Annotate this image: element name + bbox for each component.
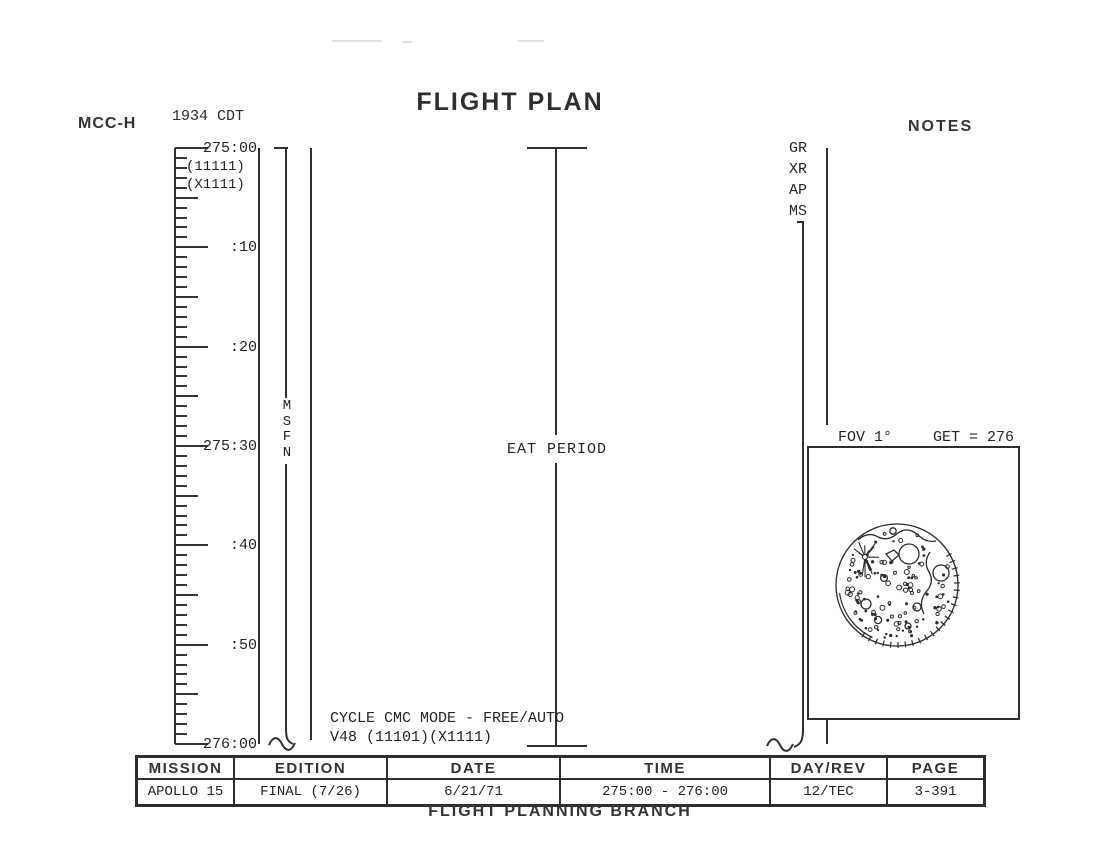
moon-illustration — [820, 508, 976, 664]
ruler-tick — [175, 534, 187, 536]
ruler-tick — [175, 286, 187, 288]
timeline-column-line — [258, 148, 260, 744]
msfn-bracket-lower — [285, 464, 287, 730]
table-value-page: 3-391 — [888, 780, 983, 804]
msfn-letter: F — [283, 430, 291, 446]
ruler-tick — [175, 475, 187, 477]
msfn-letter: S — [283, 415, 291, 431]
ruler-tick — [175, 683, 187, 685]
ruler-tick — [175, 654, 187, 656]
eat-period-line-upper — [555, 148, 557, 435]
page-title: FLIGHT PLAN — [400, 88, 620, 117]
dap-config-label: (X1111) — [186, 176, 245, 194]
ruler-tick — [175, 207, 187, 209]
ruler-tick — [175, 554, 187, 556]
ruler-tick — [175, 415, 187, 417]
table-header-time: TIME — [561, 758, 771, 780]
ruler-tick — [175, 634, 187, 636]
msfn-label: MSFN — [279, 399, 295, 461]
ruler-tick — [175, 395, 198, 397]
cmc-mode-note: CYCLE CMC MODE - FREE/AUTOV48 (11101)(X1… — [330, 709, 564, 747]
ruler-tick — [175, 296, 198, 298]
ruler-tick — [175, 703, 187, 705]
ruler-tick — [175, 405, 187, 407]
table-header-date: DATE — [388, 758, 561, 780]
ruler-tick — [175, 614, 187, 616]
ruler-tick — [175, 306, 187, 308]
ruler-tick — [175, 385, 187, 387]
scan-artifact — [518, 40, 544, 42]
ruler-time-label: :40 — [167, 537, 257, 554]
ruler-tick — [175, 664, 187, 666]
flight-plan-page: FLIGHT PLAN MCC-H 1934 CDT NOTES 275:00:… — [0, 0, 1100, 850]
ruler-tick — [175, 326, 187, 328]
ruler-tick — [175, 713, 187, 715]
ruler-tick — [175, 356, 187, 358]
footer-branch-label: FLIGHT PLANNING BRANCH — [330, 803, 790, 821]
ruler-time-label: 275:30 — [167, 438, 257, 455]
ruler-time-label: :20 — [167, 339, 257, 356]
ruler-tick — [175, 515, 187, 517]
table-header-edition: EDITION — [235, 758, 388, 780]
ruler-tick — [175, 524, 187, 526]
table-value-day-rev: 12/TEC — [771, 780, 888, 804]
sensor-label-ap: AP — [789, 182, 807, 199]
table-value-date: 6/21/71 — [388, 780, 561, 804]
ruler-tick — [175, 505, 187, 507]
ruler-tick — [175, 485, 187, 487]
mcc-h-label: MCC-H — [78, 115, 136, 133]
footer-data-table: MISSIONEDITIONDATETIMEDAY/REVPAGEAPOLLO … — [135, 755, 986, 807]
msfn-letter: M — [283, 399, 291, 415]
ruler-tick — [175, 455, 187, 457]
msfn-bracket-end-squiggle — [266, 726, 308, 756]
ruler-time-label: 276:00 — [167, 736, 257, 753]
table-header-page: PAGE — [888, 758, 983, 780]
ruler-tick — [175, 495, 198, 497]
eat-period-label: EAT PERIOD — [497, 441, 617, 458]
dap-config-labels: (11111)(X1111) — [186, 158, 245, 194]
dap-config-label: (11111) — [186, 158, 245, 176]
eat-period-line-lower — [555, 463, 557, 746]
ruler-tick — [175, 733, 187, 735]
ruler-tick — [175, 316, 187, 318]
ruler-tick — [175, 584, 187, 586]
ruler-time-label: :10 — [167, 239, 257, 256]
sensor-label-gr: GR — [789, 140, 807, 157]
ruler-tick — [175, 594, 198, 596]
ruler-tick — [175, 693, 198, 695]
ruler-tick — [175, 366, 187, 368]
table-header-day-rev: DAY/REV — [771, 758, 888, 780]
notes-column-line-below-box — [826, 719, 828, 744]
ruler-tick — [175, 276, 187, 278]
table-header-mission: MISSION — [138, 758, 235, 780]
msfn-bracket-upper — [285, 148, 287, 398]
ruler-tick — [175, 425, 187, 427]
ruler-tick — [175, 673, 187, 675]
ruler-tick — [175, 624, 187, 626]
msfn-letter: N — [283, 446, 291, 462]
ruler-tick — [175, 236, 187, 238]
ruler-tick — [175, 564, 187, 566]
table-value-edition: FINAL (7/26) — [235, 780, 388, 804]
table-value-mission: APOLLO 15 — [138, 780, 235, 804]
ruler-tick — [175, 435, 187, 437]
ruler-tick — [175, 604, 187, 606]
sensor-label-ms: MS — [789, 203, 807, 220]
ruler-tick — [175, 723, 187, 725]
table-value-time: 275:00 - 276:00 — [561, 780, 771, 804]
ruler-tick — [175, 256, 187, 258]
eat-period-top-bar — [527, 147, 587, 149]
get-label: GET = 276 — [933, 429, 1014, 446]
notes-column-title: NOTES — [908, 118, 973, 136]
cdt-time-label: 1934 CDT — [172, 108, 244, 125]
sensor-bracket-line — [802, 222, 804, 733]
sensor-bracket-end-squiggle — [763, 728, 808, 756]
ruler-time-label: 275:00 — [167, 140, 257, 157]
ruler-tick — [175, 217, 187, 219]
ruler-tick — [175, 336, 187, 338]
ruler-tick — [175, 266, 187, 268]
ruler-tick — [175, 574, 187, 576]
ruler-tick — [175, 375, 187, 377]
sensor-label-xr: XR — [789, 161, 807, 178]
ruler-time-label: :50 — [167, 637, 257, 654]
ruler-tick — [175, 197, 198, 199]
fov-label: FOV 1° — [838, 429, 892, 446]
ruler-tick — [175, 226, 187, 228]
scan-artifact — [332, 40, 382, 42]
ruler-tick — [175, 465, 187, 467]
timeline-column-line-2 — [310, 148, 312, 740]
scan-artifact — [402, 41, 412, 43]
notes-column-line — [826, 148, 828, 425]
